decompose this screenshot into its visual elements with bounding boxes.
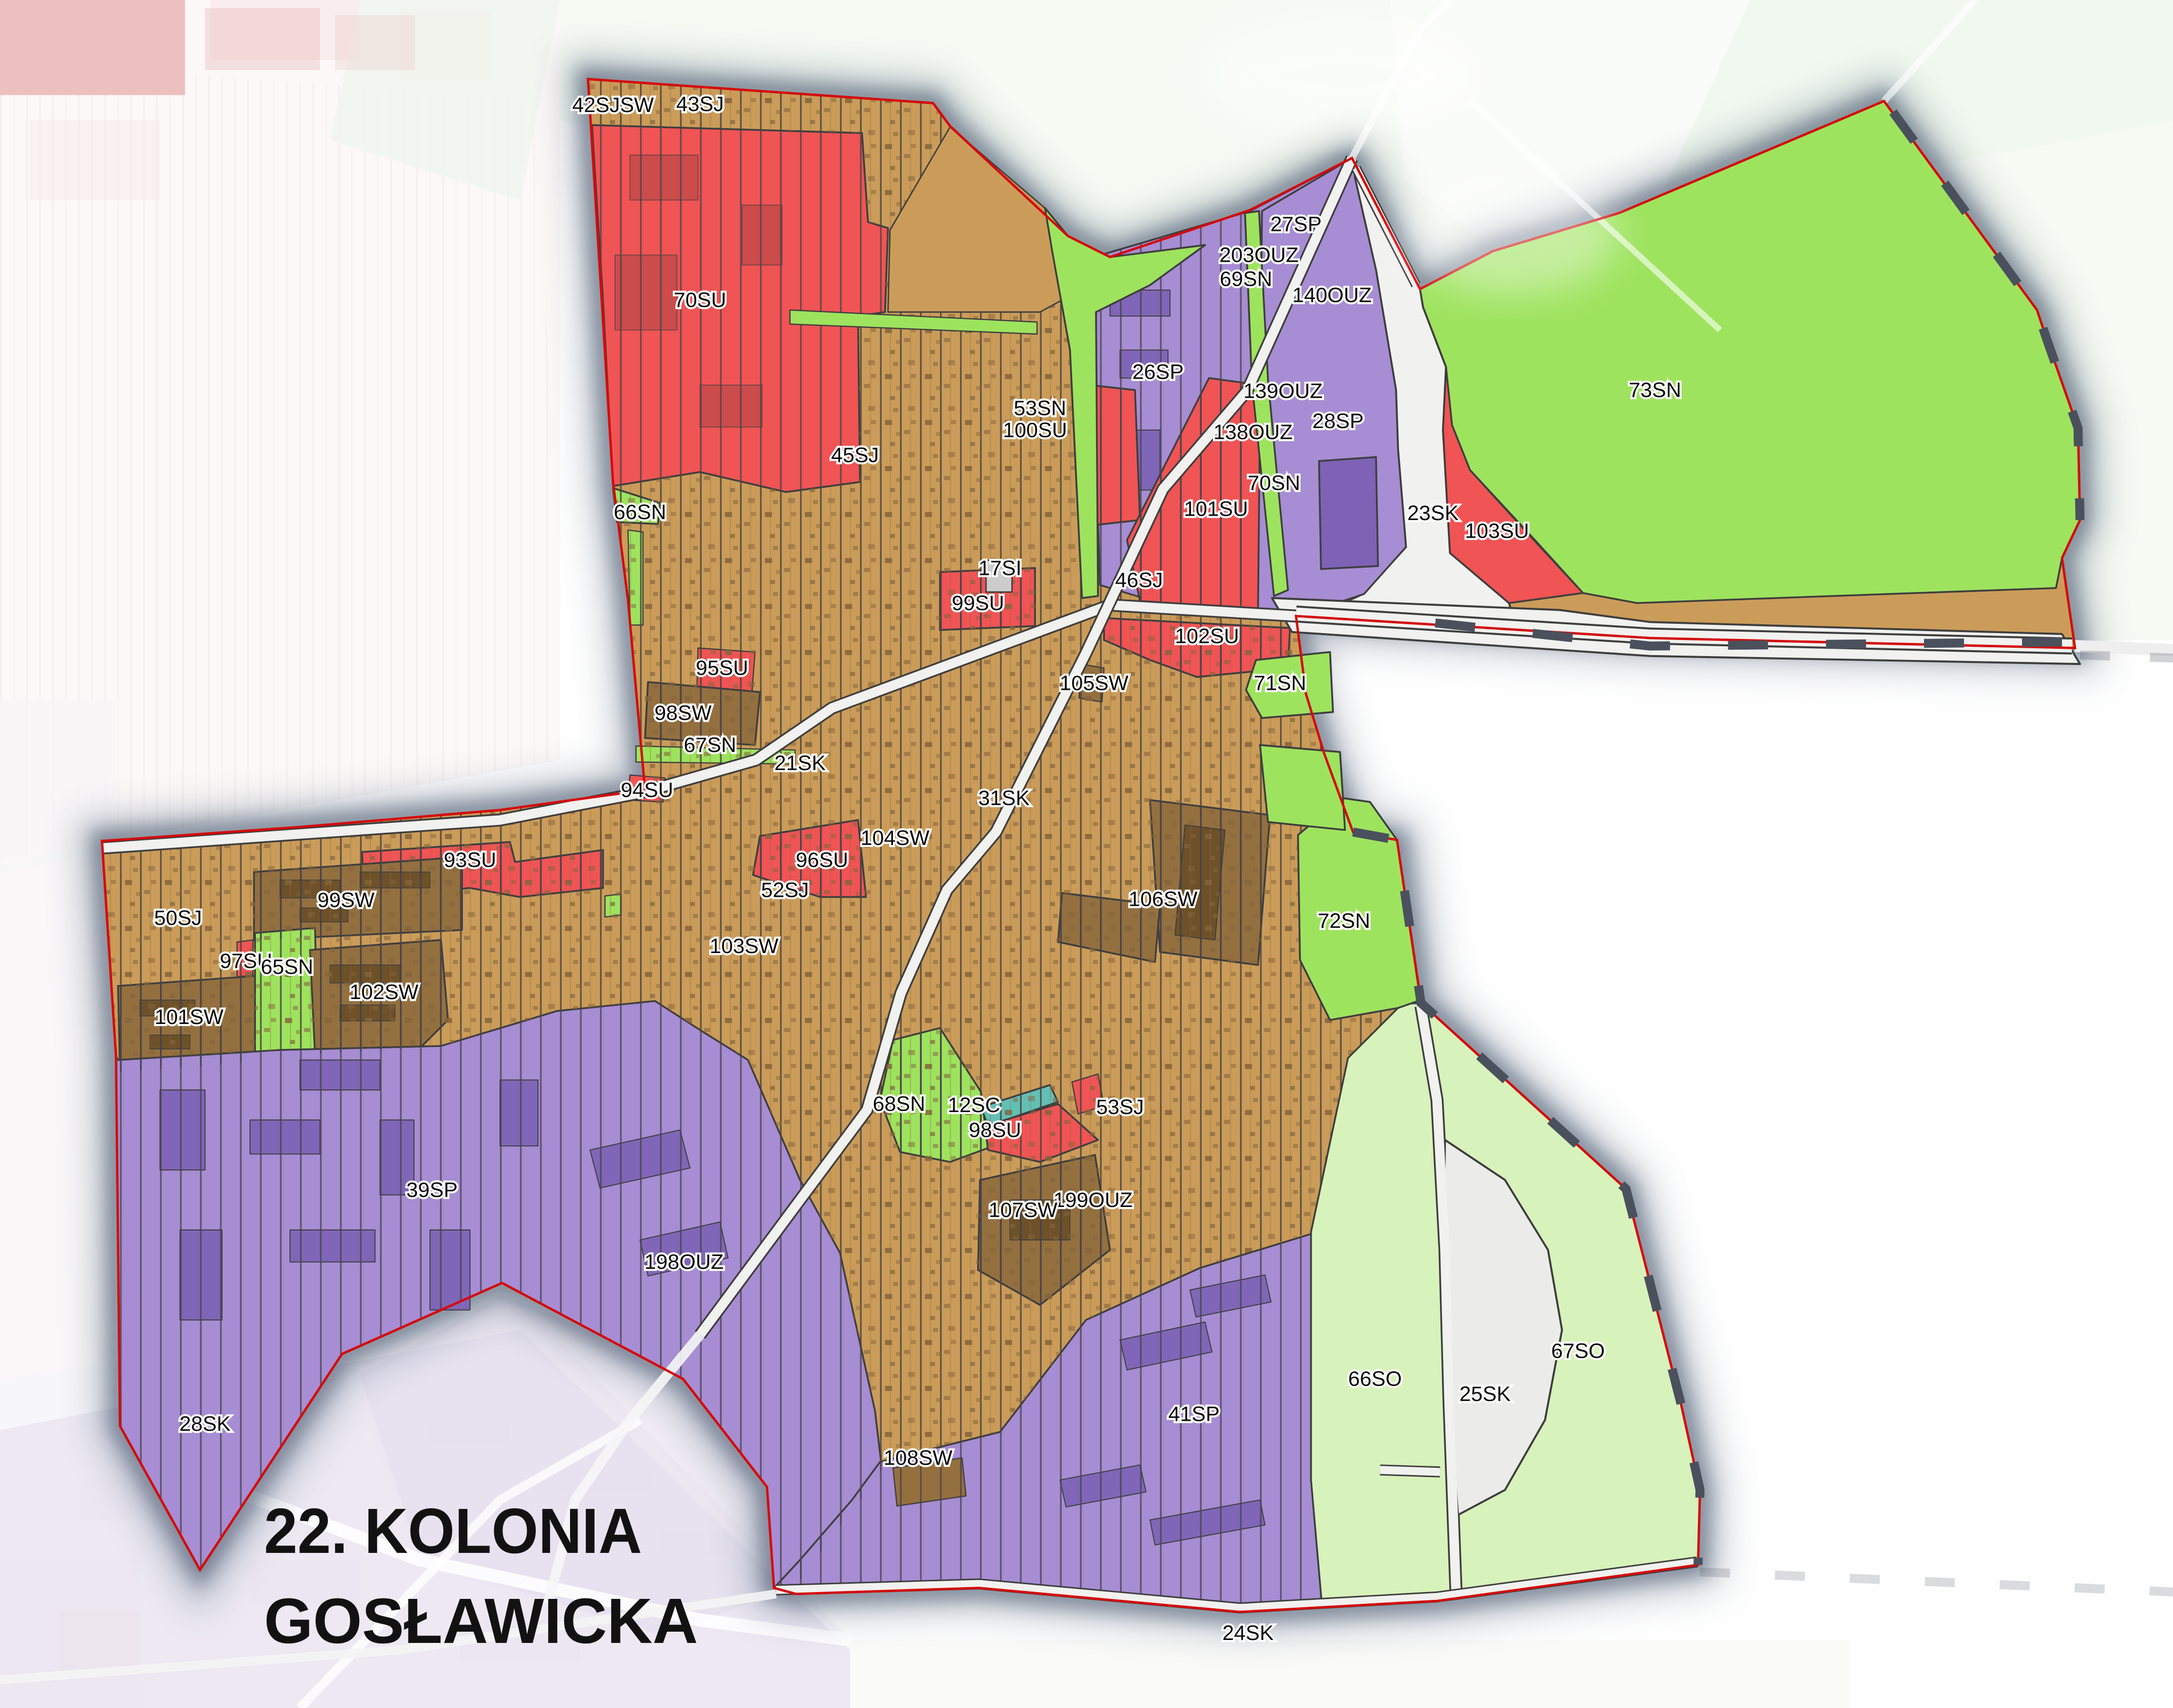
svg-text:107SW: 107SW — [988, 1198, 1057, 1222]
svg-text:73SN: 73SN — [1629, 379, 1681, 402]
svg-text:26SP: 26SP — [1132, 361, 1184, 384]
svg-text:106SW: 106SW — [1128, 888, 1197, 911]
svg-text:66SN: 66SN — [614, 501, 666, 524]
svg-text:101SU: 101SU — [1184, 498, 1248, 521]
svg-text:139OUZ: 139OUZ — [1243, 380, 1323, 403]
svg-text:46SJ: 46SJ — [1115, 569, 1163, 592]
svg-text:93SU: 93SU — [444, 848, 496, 872]
svg-text:42SJSW: 42SJSW — [572, 93, 654, 117]
svg-text:39SP: 39SP — [406, 1178, 457, 1202]
svg-text:66SO: 66SO — [1348, 1367, 1402, 1391]
svg-text:25SK: 25SK — [1459, 1382, 1510, 1406]
svg-text:102SW: 102SW — [349, 980, 418, 1004]
svg-text:28SP: 28SP — [1312, 410, 1364, 433]
svg-text:23SK: 23SK — [1407, 501, 1459, 525]
svg-text:203OUZ: 203OUZ — [1219, 244, 1299, 267]
svg-text:12SC: 12SC — [948, 1093, 1000, 1117]
svg-text:101SW: 101SW — [155, 1005, 224, 1029]
svg-text:103SW: 103SW — [709, 934, 778, 958]
svg-text:50SJ: 50SJ — [154, 907, 202, 930]
svg-text:41SP: 41SP — [1168, 1402, 1220, 1426]
svg-text:GOSŁAWICKA: GOSŁAWICKA — [264, 1585, 698, 1657]
svg-text:43SJ: 43SJ — [676, 92, 724, 116]
svg-text:22. KOLONIA: 22. KOLONIA — [264, 1495, 642, 1567]
svg-text:140OUZ: 140OUZ — [1292, 283, 1372, 307]
svg-text:99SU: 99SU — [952, 592, 1004, 615]
svg-text:21SK: 21SK — [774, 752, 825, 775]
svg-text:53SJ: 53SJ — [1096, 1095, 1144, 1119]
svg-text:70SU: 70SU — [674, 289, 726, 312]
svg-text:52SJ: 52SJ — [761, 878, 809, 902]
svg-text:17SI: 17SI — [979, 556, 1022, 580]
svg-text:103SU: 103SU — [1465, 520, 1529, 543]
svg-text:198OUZ: 198OUZ — [644, 1251, 724, 1274]
svg-text:71SN: 71SN — [1254, 671, 1306, 695]
svg-text:24SK: 24SK — [1222, 1621, 1274, 1645]
svg-text:104SW: 104SW — [861, 826, 930, 850]
svg-text:27SP: 27SP — [1270, 212, 1322, 236]
svg-text:45SJ: 45SJ — [831, 443, 879, 467]
svg-text:70SN: 70SN — [1248, 472, 1300, 495]
svg-text:98SW: 98SW — [654, 702, 711, 725]
svg-text:108SW: 108SW — [884, 1446, 953, 1470]
svg-text:67SO: 67SO — [1551, 1340, 1605, 1363]
svg-text:65SN: 65SN — [261, 956, 313, 979]
svg-text:72SN: 72SN — [1318, 910, 1370, 933]
svg-text:102SU: 102SU — [1175, 624, 1239, 648]
svg-text:138OUZ: 138OUZ — [1213, 420, 1293, 444]
svg-text:96SU: 96SU — [796, 848, 848, 872]
svg-text:69SN: 69SN — [1220, 268, 1272, 291]
svg-text:67SN: 67SN — [684, 733, 736, 757]
svg-text:100SU: 100SU — [1003, 418, 1067, 442]
svg-text:68SN: 68SN — [873, 1093, 925, 1116]
svg-text:99SW: 99SW — [318, 888, 375, 912]
svg-text:31SK: 31SK — [978, 786, 1029, 810]
svg-text:94SU: 94SU — [621, 778, 673, 802]
svg-text:199OUZ: 199OUZ — [1053, 1188, 1133, 1212]
svg-text:53SN: 53SN — [1014, 396, 1066, 420]
svg-text:28SK: 28SK — [179, 1412, 230, 1436]
svg-text:105SW: 105SW — [1059, 671, 1128, 695]
svg-text:98SU: 98SU — [969, 1118, 1021, 1142]
svg-text:95SU: 95SU — [696, 657, 748, 680]
